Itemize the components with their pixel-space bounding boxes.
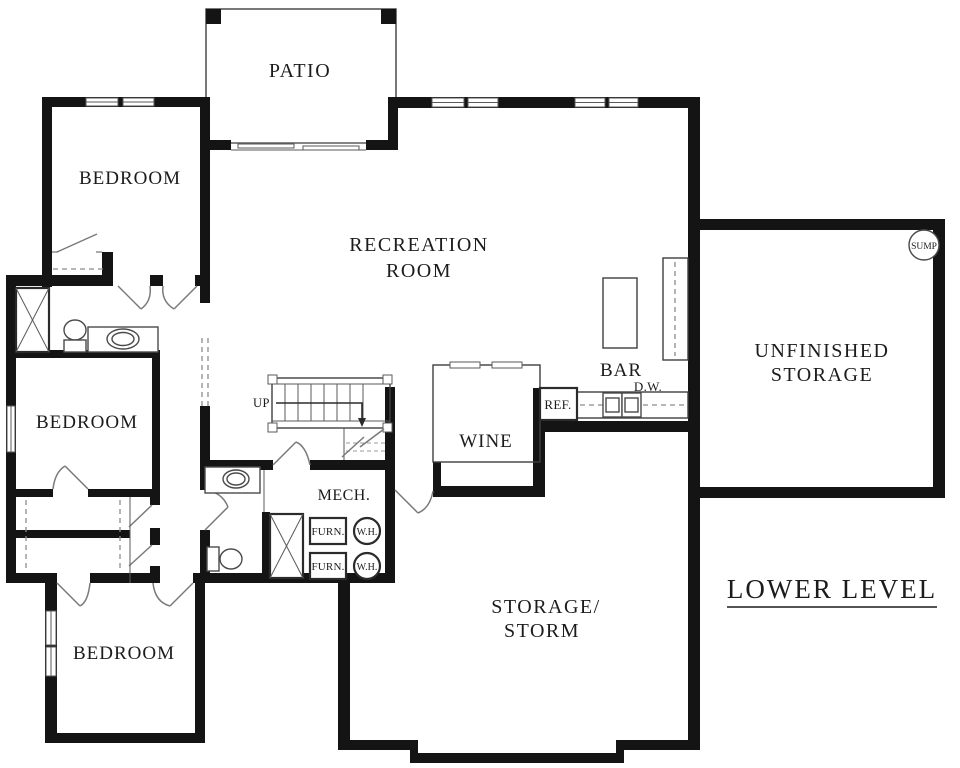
bath-lower-fixtures	[205, 467, 303, 578]
label-unfinished-line1: UNFINISHED	[755, 340, 890, 362]
label-bedroom-bottom: BEDROOM	[73, 643, 175, 664]
label-recreation-line1: RECREATION	[349, 234, 488, 256]
shower-icon	[270, 514, 303, 578]
level-title: LOWER LEVEL	[727, 574, 937, 607]
label-water-heater-top: W.H.	[357, 527, 378, 538]
toilet-icon	[207, 547, 242, 571]
label-furnace-top: FURN.	[311, 526, 344, 538]
label-bar: BAR	[600, 360, 642, 381]
label-recreation-line2: ROOM	[386, 260, 452, 282]
patio-post-right	[381, 9, 396, 24]
sump-pump-icon: SUMP	[909, 230, 939, 260]
label-patio: PATIO	[269, 60, 331, 82]
mech-equipment: FURN. FURN. W.H. W.H.	[310, 518, 380, 579]
floor-plan-page: UP	[0, 0, 960, 768]
floor-plan-drawing: UP	[0, 0, 960, 768]
plan-title: LOWER LEVEL	[727, 574, 937, 604]
vanity-sink-icon	[88, 327, 158, 352]
dishwasher-icon	[603, 393, 641, 417]
label-unfinished-line2: STORAGE	[771, 364, 873, 386]
label-bedroom-middle: BEDROOM	[36, 412, 138, 433]
label-refrigerator: REF.	[544, 397, 571, 412]
label-water-heater-bottom: W.H.	[357, 562, 378, 573]
cased-opening	[202, 338, 208, 406]
toilet-icon	[64, 320, 86, 352]
up-arrow-icon	[276, 403, 366, 427]
sliding-door-icon	[231, 143, 366, 150]
bath-upper-fixtures	[16, 288, 158, 352]
label-wine: WINE	[459, 431, 513, 452]
bar-island	[603, 278, 637, 348]
back-counter	[663, 258, 688, 360]
patio-post-left	[206, 9, 221, 24]
shower-icon	[16, 288, 49, 352]
label-storage-line1: STORAGE/	[491, 596, 600, 618]
label-storage-line2: STORM	[504, 620, 580, 642]
stairs: UP	[253, 375, 392, 460]
bar-area	[540, 258, 688, 420]
label-bedroom-top: BEDROOM	[79, 168, 181, 189]
vanity-sink-icon	[205, 467, 260, 493]
label-furnace-bottom: FURN.	[311, 561, 344, 573]
label-sump: SUMP	[911, 242, 937, 252]
label-dishwasher: D.W.	[634, 379, 662, 394]
stair-landing	[342, 428, 386, 460]
label-mech: MECH.	[318, 487, 371, 504]
label-stairs-up: UP	[253, 396, 270, 410]
